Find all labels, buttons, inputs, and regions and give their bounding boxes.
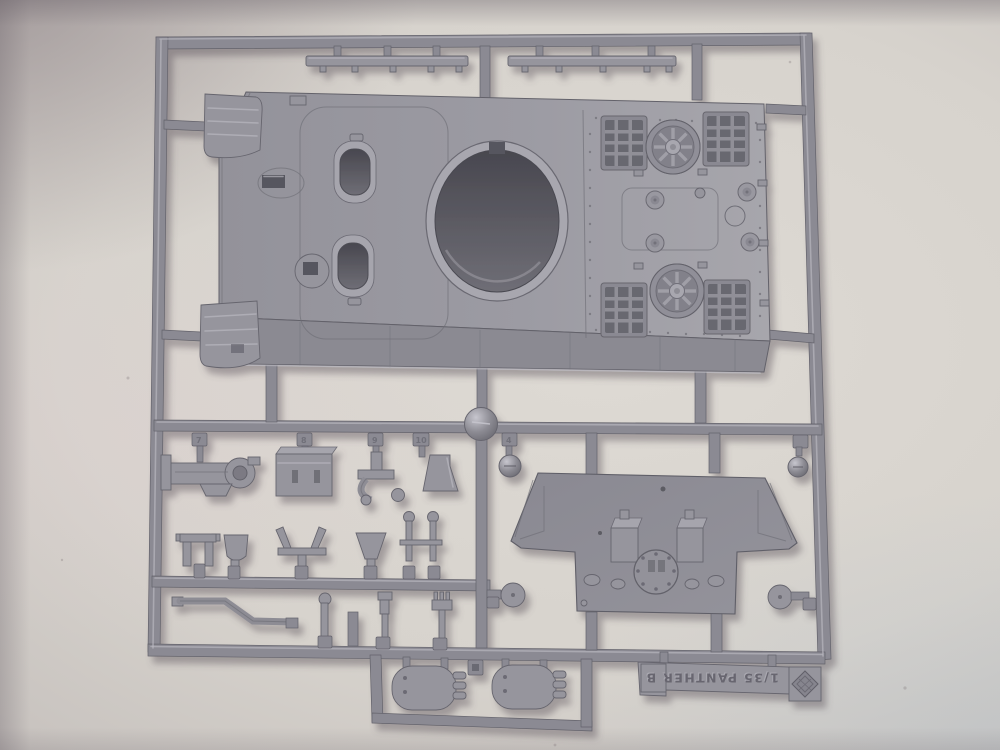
subframe-bottom-rail xyxy=(372,713,592,731)
fender-strips xyxy=(306,46,676,72)
filler-cap xyxy=(738,183,756,201)
disc-part-right xyxy=(768,585,816,610)
rear-hull-plate-part xyxy=(511,473,797,614)
fender-strip-part xyxy=(306,46,468,72)
spade-head-part xyxy=(224,535,248,579)
dome-part xyxy=(465,408,498,441)
engine-grille xyxy=(703,112,749,166)
parts-row-lower xyxy=(172,583,525,650)
access-hatch xyxy=(634,550,678,594)
photo-model-kit-sprue: 7 8 xyxy=(0,0,1000,750)
turret-ring-opening xyxy=(426,141,568,301)
sprue: 7 8 xyxy=(148,33,831,731)
pin-part xyxy=(318,593,332,648)
dome-upper-stub xyxy=(477,366,487,412)
stowage-box-part xyxy=(276,447,337,496)
number-tab-10: 10 xyxy=(413,433,429,457)
plate-bottom-left-stub xyxy=(586,612,597,650)
part-number: 4 xyxy=(506,436,512,445)
front-mudguard-upper xyxy=(204,94,262,158)
fender-strip-part xyxy=(508,46,676,72)
hatch-cover-part xyxy=(392,657,466,710)
exhaust-mount xyxy=(611,510,642,562)
brand-tag-text: 1/35 PANTHER B xyxy=(645,671,779,686)
mudguard-rail-connector-bottom xyxy=(162,330,201,341)
front-mudguard-lower xyxy=(200,301,260,368)
mudguard-rail-connector-top xyxy=(164,120,206,131)
center-vertical-runner xyxy=(476,434,487,648)
sprue-drawing: 7 8 xyxy=(0,0,1000,750)
subframe-right-rail xyxy=(581,659,592,727)
clamp-part xyxy=(358,452,405,505)
exhaust-mount xyxy=(677,510,707,562)
filler-cap xyxy=(741,233,759,251)
part-number: 9 xyxy=(372,436,378,445)
ball-part xyxy=(499,455,521,477)
engine-grille xyxy=(601,116,647,170)
part-number: 8 xyxy=(301,436,307,445)
brand-tag-text-group: 1/35 PANTHER B 1/35 PANTHER B xyxy=(644,670,779,686)
ball-part-right xyxy=(788,435,808,477)
plate-bottom-right-stub xyxy=(711,610,722,652)
hull-right-rail-connector-top xyxy=(766,104,806,115)
bottom-subframe xyxy=(370,655,592,731)
cooling-fan xyxy=(650,264,704,318)
filler-cap xyxy=(646,234,664,252)
plate-bolt xyxy=(581,600,587,606)
small-round-hatch xyxy=(295,254,329,288)
subframe-left-rail xyxy=(370,655,383,722)
bracket-part xyxy=(432,592,452,650)
plate-top-right-stub xyxy=(709,433,720,473)
tool-rack-part xyxy=(276,527,326,579)
number-tab-4: 4 xyxy=(502,433,517,457)
ring-key-notch xyxy=(489,142,505,154)
tow-clevis-part xyxy=(176,534,220,578)
small-cap xyxy=(695,188,705,198)
frame-right-rail xyxy=(800,33,831,660)
part-number: 10 xyxy=(416,436,428,445)
periscope-bump xyxy=(290,96,306,105)
plate-top-left-stub xyxy=(586,433,597,477)
plate-hole xyxy=(661,487,666,492)
hull-right-rail-connector-bottom xyxy=(768,330,814,343)
filler-cap xyxy=(646,191,664,209)
hatch-cover-part xyxy=(492,659,566,709)
number-tab-7: 7 xyxy=(192,433,207,462)
engine-grille xyxy=(601,283,647,337)
disc-part-left xyxy=(487,583,525,608)
part-number: 7 xyxy=(196,436,202,445)
number-tab-9: 9 xyxy=(368,433,383,454)
parts-row-middle xyxy=(176,512,442,580)
cooling-fan xyxy=(646,120,700,174)
engine-grille xyxy=(704,280,750,334)
top-center-vertical xyxy=(480,46,490,98)
hull-left-stub xyxy=(266,358,277,422)
plate-hole xyxy=(598,531,602,535)
top-right-vertical xyxy=(692,44,702,100)
wedge-part xyxy=(423,455,458,491)
periscope-part xyxy=(376,592,392,649)
rod-tools-part xyxy=(400,512,442,580)
subframe-tab-hole xyxy=(472,664,479,671)
jack-part xyxy=(161,455,260,496)
upper-hull-part xyxy=(200,92,770,373)
funnel-part xyxy=(356,533,386,579)
